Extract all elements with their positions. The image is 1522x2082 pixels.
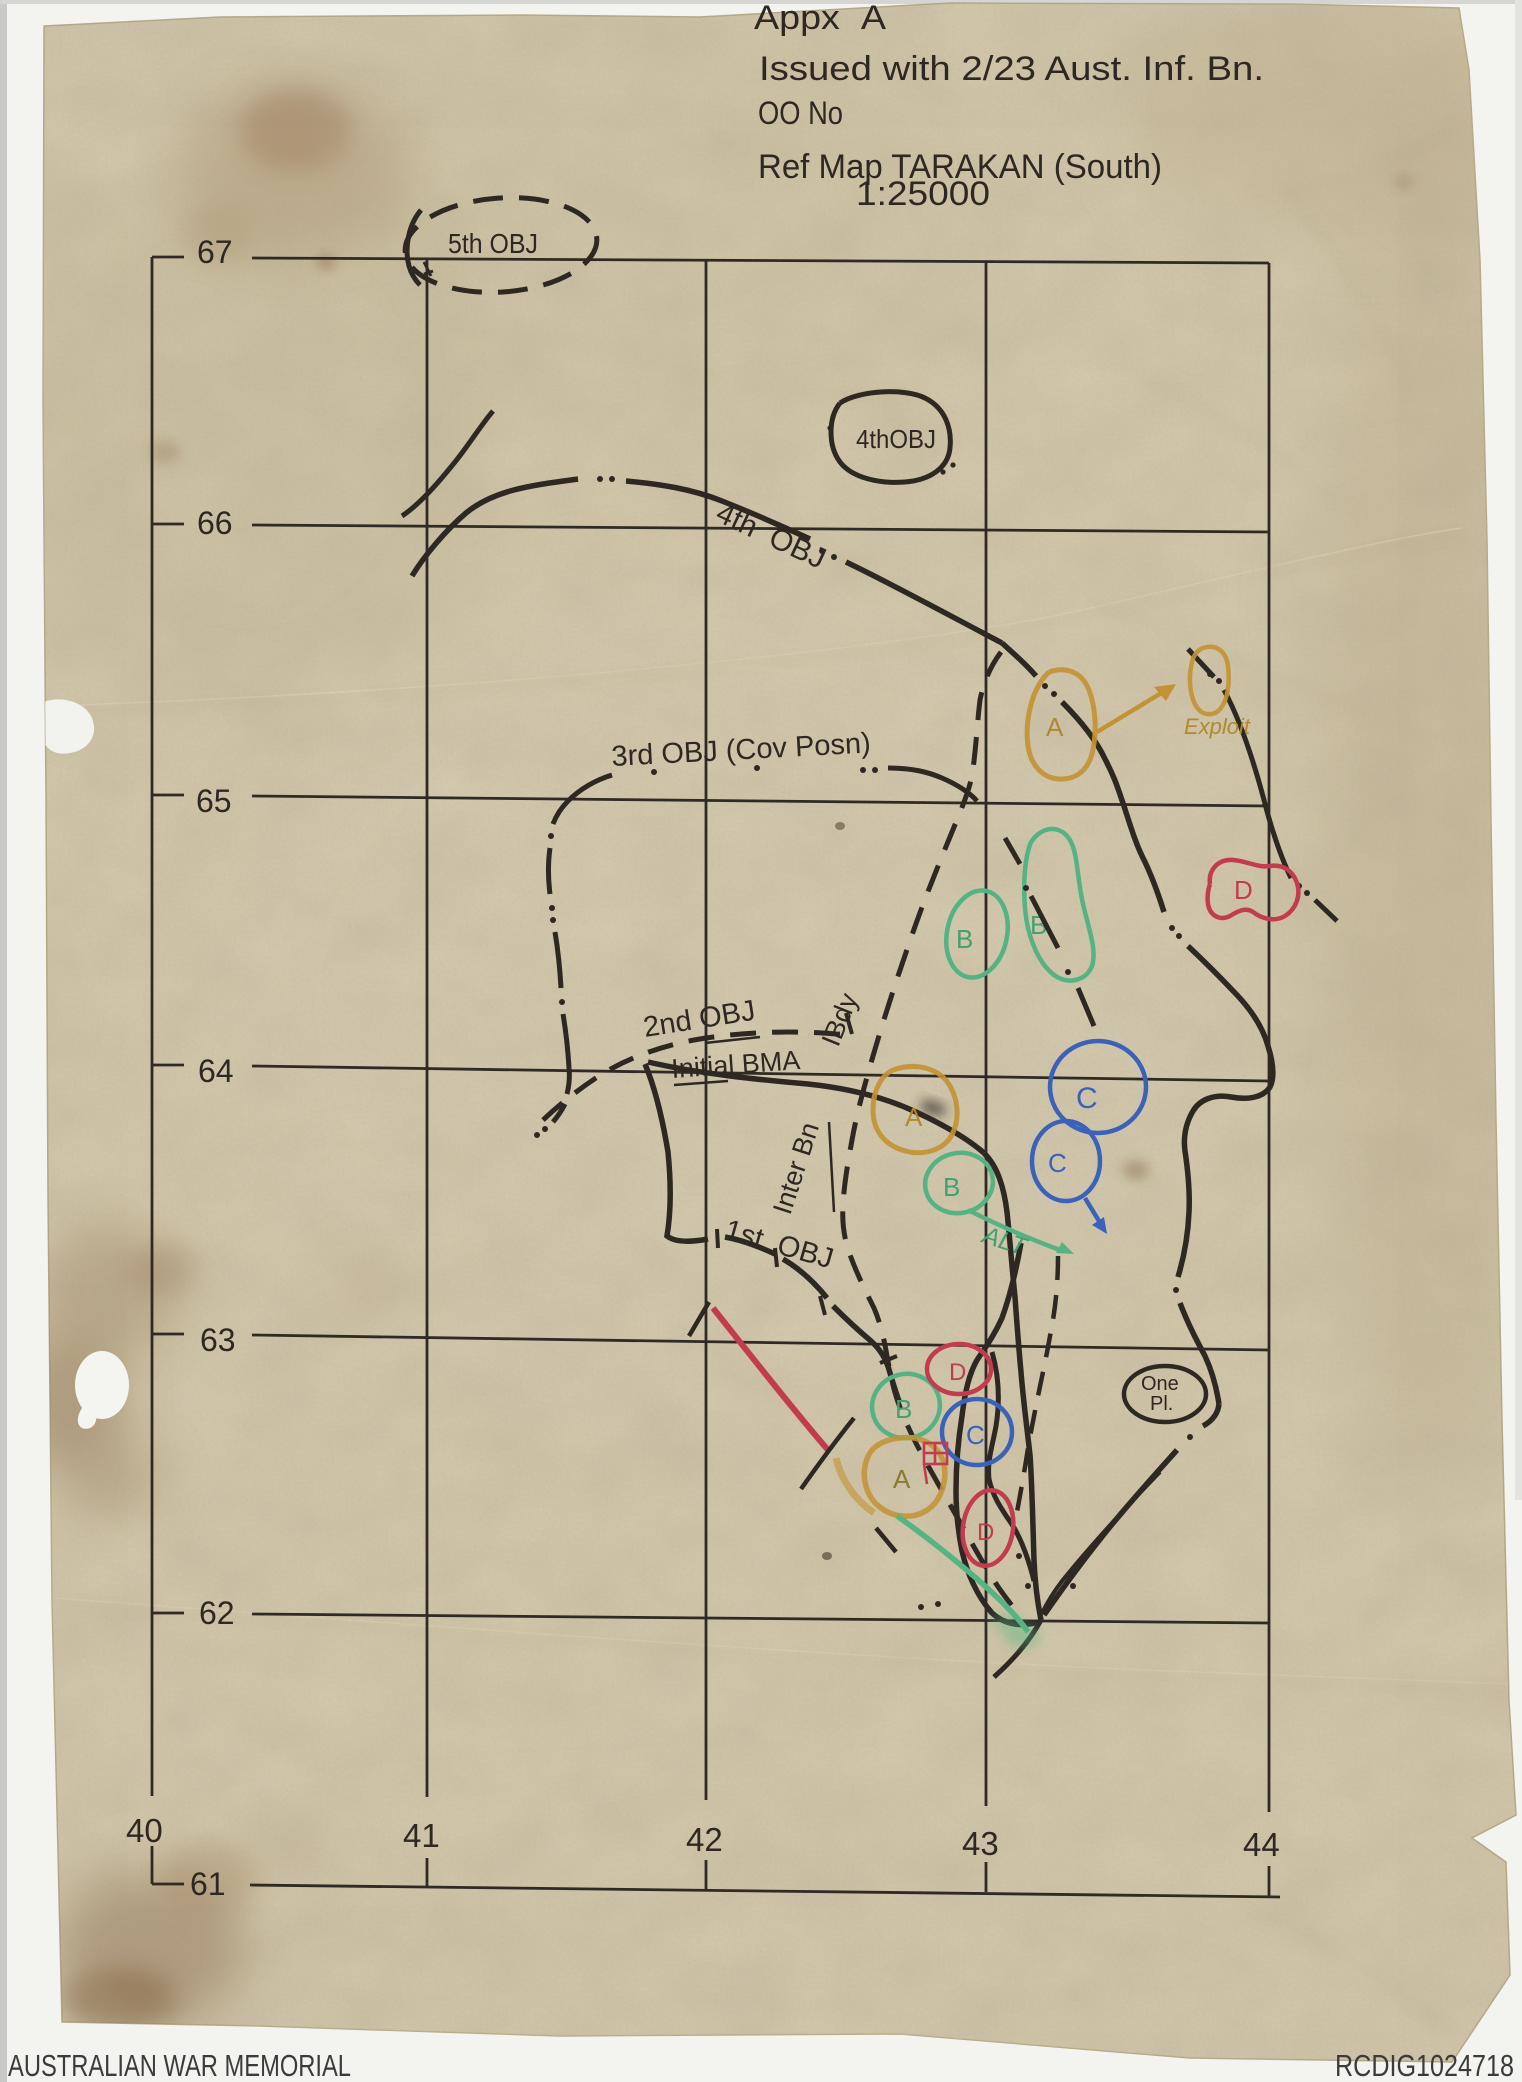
svg-text:B: B: [943, 1172, 960, 1202]
svg-text:One: One: [1141, 1373, 1179, 1395]
svg-text:OO No: OO No: [758, 95, 843, 131]
svg-text:64: 64: [198, 1053, 234, 1089]
svg-text:44: 44: [1243, 1826, 1280, 1863]
svg-text:5th OBJ: 5th OBJ: [448, 228, 538, 259]
svg-text:67: 67: [197, 234, 233, 270]
svg-text:4thOBJ: 4thOBJ: [856, 424, 936, 454]
svg-text:63: 63: [200, 1322, 236, 1358]
svg-text:Exploit: Exploit: [1184, 714, 1251, 739]
svg-text:42: 42: [686, 1821, 723, 1858]
svg-text:Pl.: Pl.: [1150, 1393, 1173, 1415]
svg-text:B: B: [895, 1394, 912, 1424]
svg-text:A: A: [1046, 712, 1064, 742]
svg-text:C: C: [1076, 1082, 1098, 1115]
svg-text:Appx A: Appx A: [754, 0, 886, 37]
svg-text:43: 43: [962, 1825, 999, 1862]
svg-text:65: 65: [196, 783, 232, 819]
svg-text:D: D: [1234, 875, 1253, 905]
svg-text:Issued with 2/23 Aust. Inf. Bn: Issued with 2/23 Aust. Inf. Bn.: [759, 50, 1264, 88]
svg-text:41: 41: [403, 1817, 440, 1854]
svg-text:62: 62: [199, 1595, 235, 1631]
svg-text:D: D: [977, 1519, 994, 1546]
svg-text:A: A: [893, 1464, 911, 1494]
svg-text:AUSTRALIAN WAR MEMORIAL: AUSTRALIAN WAR MEMORIAL: [8, 2048, 351, 2082]
svg-text:C: C: [1048, 1148, 1067, 1178]
svg-text:1:25000: 1:25000: [856, 175, 990, 213]
svg-text:RCDIG1024718: RCDIG1024718: [1335, 2048, 1514, 2082]
svg-text:61: 61: [190, 1866, 226, 1902]
svg-text:D: D: [949, 1359, 966, 1386]
svg-text:B: B: [956, 924, 973, 954]
svg-text:C: C: [966, 1420, 985, 1450]
svg-text:66: 66: [197, 505, 233, 541]
svg-text:40: 40: [126, 1812, 163, 1849]
